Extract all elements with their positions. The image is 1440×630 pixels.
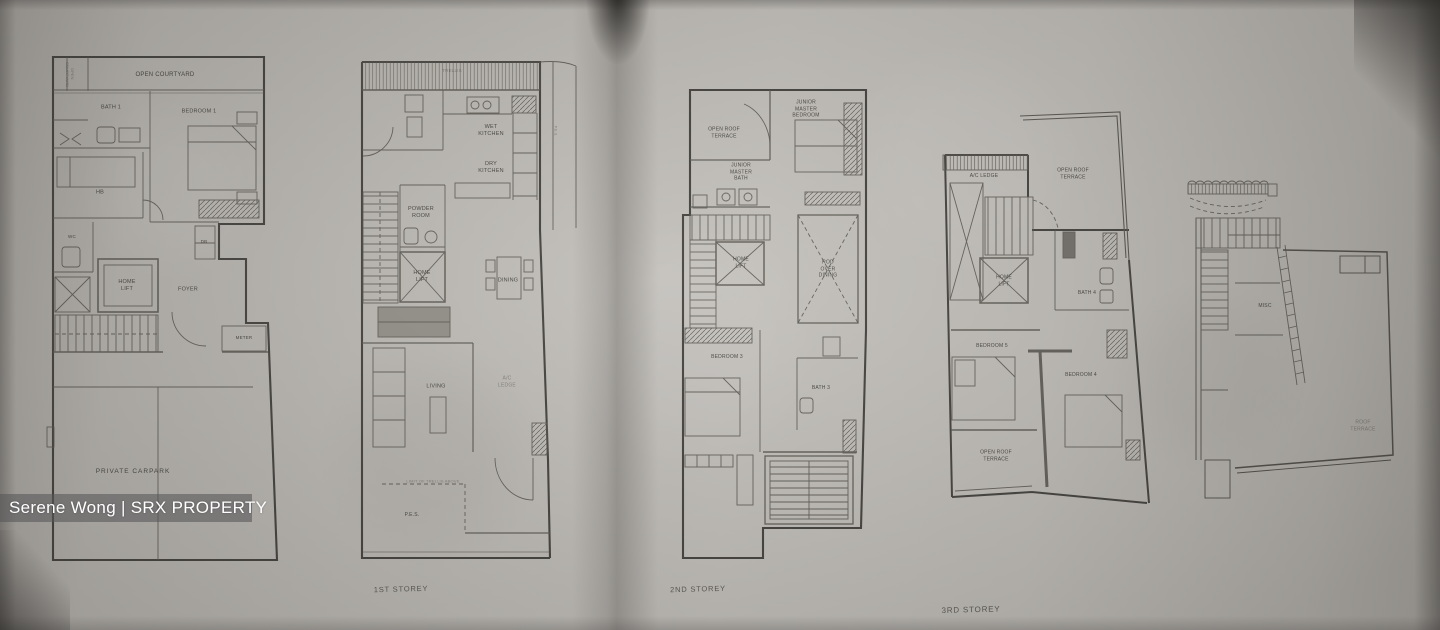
room-label-bedroom1: BEDROOM 1 bbox=[169, 108, 229, 115]
room-label-junior-master-bedroom: JUNIOR MASTER BEDROOM bbox=[785, 99, 827, 119]
floorplan-carpark-level-linework bbox=[45, 50, 285, 570]
room-label-private-carpark: PRIVATE CARPARK bbox=[73, 468, 193, 476]
edge-shadow-bottom bbox=[0, 616, 1440, 630]
floorplan-2nd-storey-linework bbox=[675, 85, 875, 595]
edge-shadow-top bbox=[0, 0, 1440, 10]
room-label-living: LIVING bbox=[416, 383, 456, 390]
room-label-open-roof-terrace-bottom: OPEN ROOF TERRACE bbox=[978, 450, 1014, 463]
room-label-home-lift: HOME LIFT bbox=[113, 279, 141, 293]
floorplan-1st-storey: TRELLIS WET KITCHEN DRY KITCHEN P.E.S. P… bbox=[350, 55, 595, 600]
edge-shadow-left bbox=[0, 0, 16, 630]
room-label-junior-master-bath: JUNIOR MASTER BATH bbox=[723, 162, 759, 182]
room-label-open-courtyard: OPEN COURTYARD bbox=[132, 72, 198, 80]
room-label-meter: METER bbox=[236, 335, 253, 341]
room-label-home-lift: HOME LIFT bbox=[409, 270, 435, 284]
room-label-trellis: TRELLIS bbox=[442, 68, 462, 74]
room-label-ac-ledge: A/C LEDGE bbox=[959, 173, 1009, 180]
room-label-dining: DINING bbox=[488, 277, 528, 284]
room-label-foyer: FOYER bbox=[168, 286, 208, 293]
room-label-bedroom3: BEDROOM 3 bbox=[702, 354, 752, 361]
storey-label-2nd: 2ND STOREY bbox=[670, 584, 726, 594]
storey-label-3rd: 3RD STOREY bbox=[941, 604, 1000, 615]
room-label-db: DB bbox=[201, 239, 208, 245]
floorplan-attic: MISC ROOF TERRACE bbox=[1178, 175, 1403, 510]
room-label-bedroom4: BEDROOM 4 bbox=[1056, 372, 1106, 379]
room-label-pes-side: P.E.S. bbox=[553, 126, 558, 137]
room-label-bath1: BATH 1 bbox=[91, 104, 131, 111]
room-label-dry-kitchen: DRY KITCHEN bbox=[474, 161, 508, 175]
room-label-roof-terrace: ROOF TERRACE bbox=[1345, 420, 1381, 433]
room-label-bath3: BATH 3 bbox=[812, 385, 830, 392]
storey-label-1st: 1ST STOREY bbox=[374, 584, 429, 594]
room-label-home-lift: HOME LIFT bbox=[991, 275, 1017, 288]
room-label-pes: P.E.S. bbox=[405, 512, 420, 519]
room-label-open-roof-terrace-top: OPEN ROOF TERRACE bbox=[1056, 168, 1090, 181]
floorplan-2nd-storey: OPEN ROOF TERRACE JUNIOR MASTER BEDROOM … bbox=[675, 85, 875, 595]
room-label-wc: WC bbox=[68, 234, 76, 240]
edge-shadow-right bbox=[1414, 0, 1440, 630]
room-label-rod-over-dining: ROD OVER DINING bbox=[814, 259, 842, 279]
floorplan-photo: OPEN COURTYARD OPEN COURTYARD BATH 1 BED… bbox=[0, 0, 1440, 630]
floorplan-1st-storey-linework bbox=[350, 55, 595, 600]
floorplan-attic-linework bbox=[1178, 175, 1403, 510]
room-label-wet-kitchen: WET KITCHEN bbox=[474, 124, 508, 138]
room-label-powder-room: POWDER ROOM bbox=[404, 206, 438, 220]
room-label-home-lift: HOME LIFT bbox=[728, 257, 754, 270]
room-label-ac-ledge: A/C LEDGE bbox=[494, 376, 520, 389]
floorplan-3rd-storey: A/C LEDGE OPEN ROOF TERRACE HOME LIFT BA… bbox=[928, 108, 1163, 620]
room-label-misc: MISC bbox=[1258, 303, 1271, 310]
agent-watermark: Serene Wong | SRX PROPERTY bbox=[0, 494, 252, 522]
floorplan-3rd-storey-linework bbox=[928, 108, 1163, 620]
floorplan-carpark-level: OPEN COURTYARD OPEN COURTYARD BATH 1 BED… bbox=[45, 50, 285, 570]
note-limit-of-trellis: LIMIT OF TRELLIS ABOVE bbox=[383, 478, 483, 483]
room-label-hb: HB bbox=[96, 189, 104, 196]
room-label-bedroom5: BEDROOM 5 bbox=[967, 343, 1017, 350]
room-label-open-courtyard-side: OPEN COURTYARD bbox=[65, 57, 75, 91]
room-label-open-roof-terrace: OPEN ROOF TERRACE bbox=[707, 127, 741, 140]
page-fold-shadow bbox=[572, 0, 658, 630]
room-label-bath4: BATH 4 bbox=[1078, 290, 1096, 297]
